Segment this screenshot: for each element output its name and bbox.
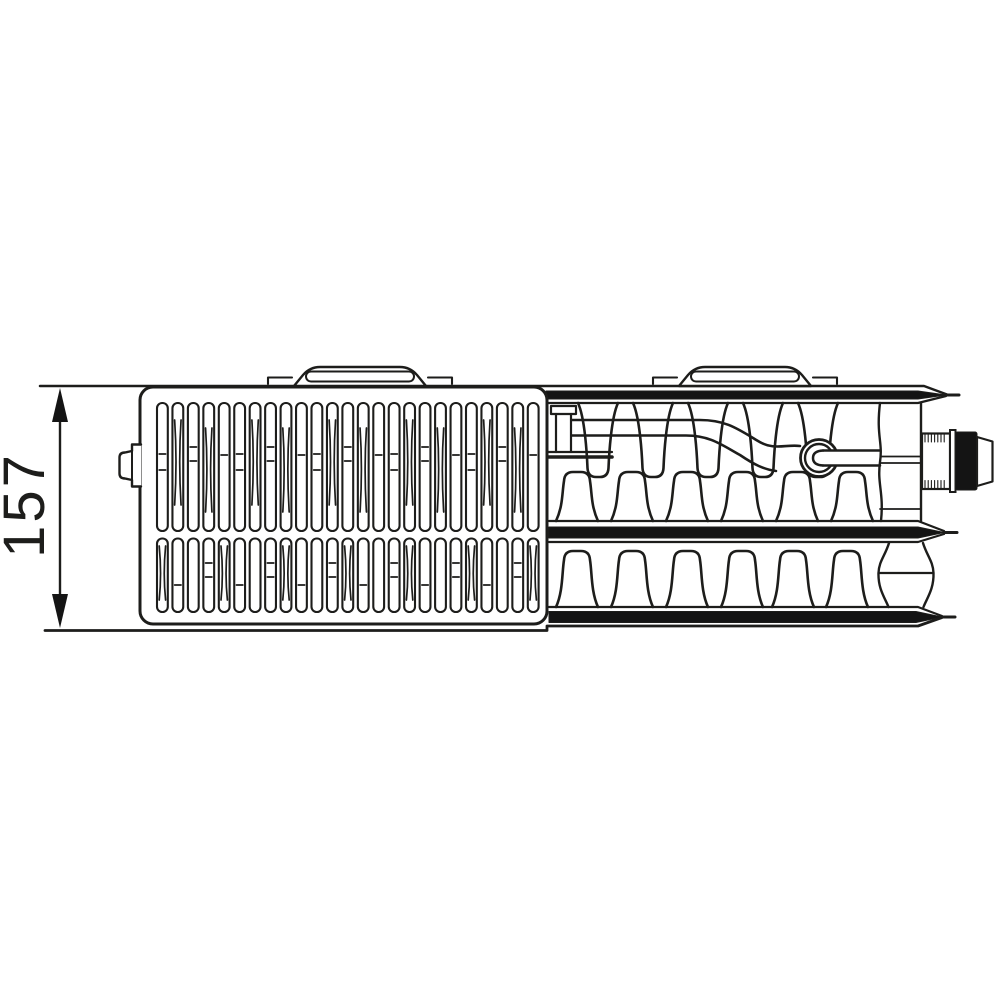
end-channel-left-edge [878, 543, 889, 607]
valve-pipe-upper-wall [572, 420, 800, 447]
bracket-slot [691, 372, 799, 382]
convector-fin-standing-upper [721, 472, 763, 521]
dimension-arrow-up [52, 388, 68, 422]
valve-pipe-mask [820, 450, 881, 467]
end-channel-right-edge [923, 543, 934, 607]
radiator-top-view-canvas: 157 [0, 0, 1000, 1000]
vent-plug [120, 445, 142, 487]
tail-nut [956, 432, 978, 490]
convector-fin-standing-upper [556, 472, 598, 521]
panel-plate-back [549, 612, 942, 623]
convector-fin-standing-lower [556, 551, 598, 607]
valve-pipe-lower-wall [572, 436, 776, 472]
valve-tube-cap [551, 406, 576, 414]
bracket-slot [306, 372, 414, 382]
convector-fin-standing-upper [776, 472, 818, 521]
tail-end-cap [977, 437, 993, 486]
convector-fin-hanging [578, 403, 618, 477]
convector-fin-standing-upper [831, 472, 873, 521]
grille-cover [140, 387, 547, 624]
mounting-bracket [268, 367, 452, 386]
panel-plate-middle [549, 527, 944, 538]
mounting-bracket [653, 367, 837, 386]
convector-fin-standing-lower [666, 551, 708, 607]
convector-fin-hanging [633, 403, 673, 477]
convector-fin-hanging [743, 403, 783, 477]
convector-fin-standing-upper [666, 472, 708, 521]
dimension-marker: 157 [0, 388, 68, 628]
tail-flange [950, 430, 956, 492]
mounting-brackets [268, 367, 837, 386]
convector-fin-standing-lower [772, 551, 814, 607]
water-channel-left-edge [879, 403, 882, 521]
radiator-technical-drawing: 157 [0, 0, 1000, 1000]
tail-nipple [922, 434, 950, 490]
grille-cover-outline [140, 387, 547, 624]
dimension-arrow-down [52, 594, 68, 628]
bracket-foot [428, 378, 452, 385]
vent-plug-outline [120, 445, 142, 487]
bracket-foot [268, 378, 292, 385]
convector-fin-standing-upper [611, 472, 653, 521]
panel-plate-front [546, 391, 946, 399]
radiator-body-section [546, 391, 993, 623]
convector-fin-standing-lower [721, 551, 763, 607]
bracket-foot [813, 378, 837, 385]
dimension-label: 157 [0, 452, 57, 558]
convector-fin-standing-lower [826, 551, 868, 607]
convector-fin-standing-lower [611, 551, 653, 607]
bracket-foot [653, 378, 677, 385]
